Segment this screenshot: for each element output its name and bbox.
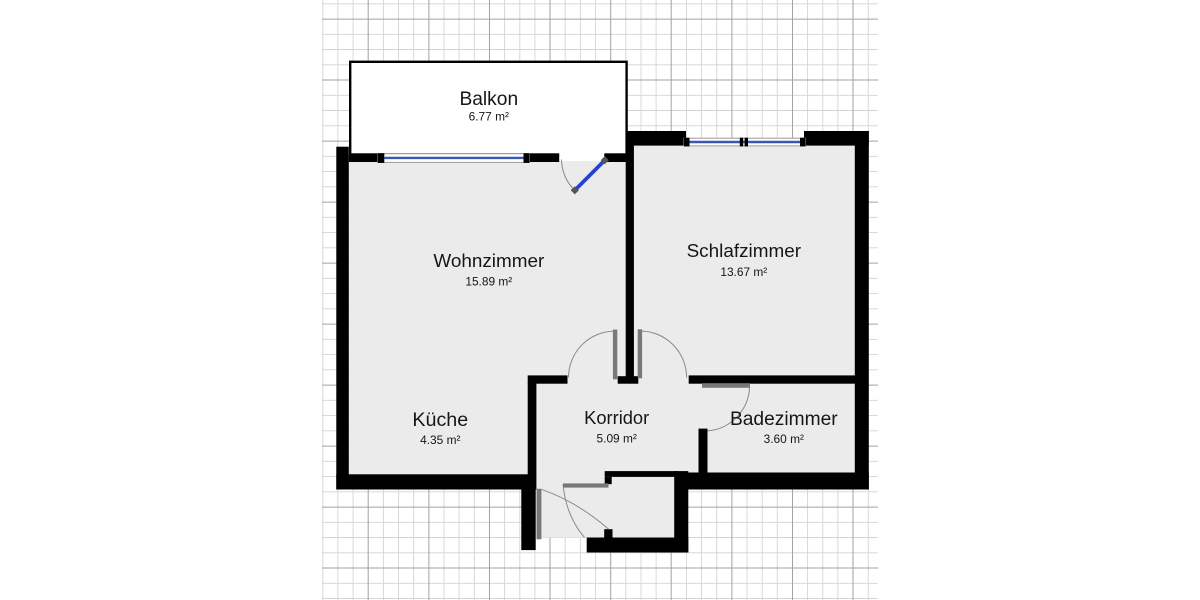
svg-text:13.67 m²: 13.67 m² [720,265,767,279]
svg-text:Balkon: Balkon [459,89,518,110]
svg-text:5.09 m²: 5.09 m² [597,432,637,446]
svg-text:Schlafzimmer: Schlafzimmer [687,241,801,262]
svg-text:Wohnzimmer: Wohnzimmer [433,251,544,272]
svg-text:Küche: Küche [412,409,468,431]
svg-text:Korridor: Korridor [584,407,649,428]
svg-text:3.60 m²: 3.60 m² [764,432,804,446]
svg-text:15.89 m²: 15.89 m² [465,275,512,289]
svg-text:4.35 m²: 4.35 m² [420,433,460,447]
svg-text:6.77 m²: 6.77 m² [469,109,509,123]
svg-text:Badezimmer: Badezimmer [730,409,838,430]
